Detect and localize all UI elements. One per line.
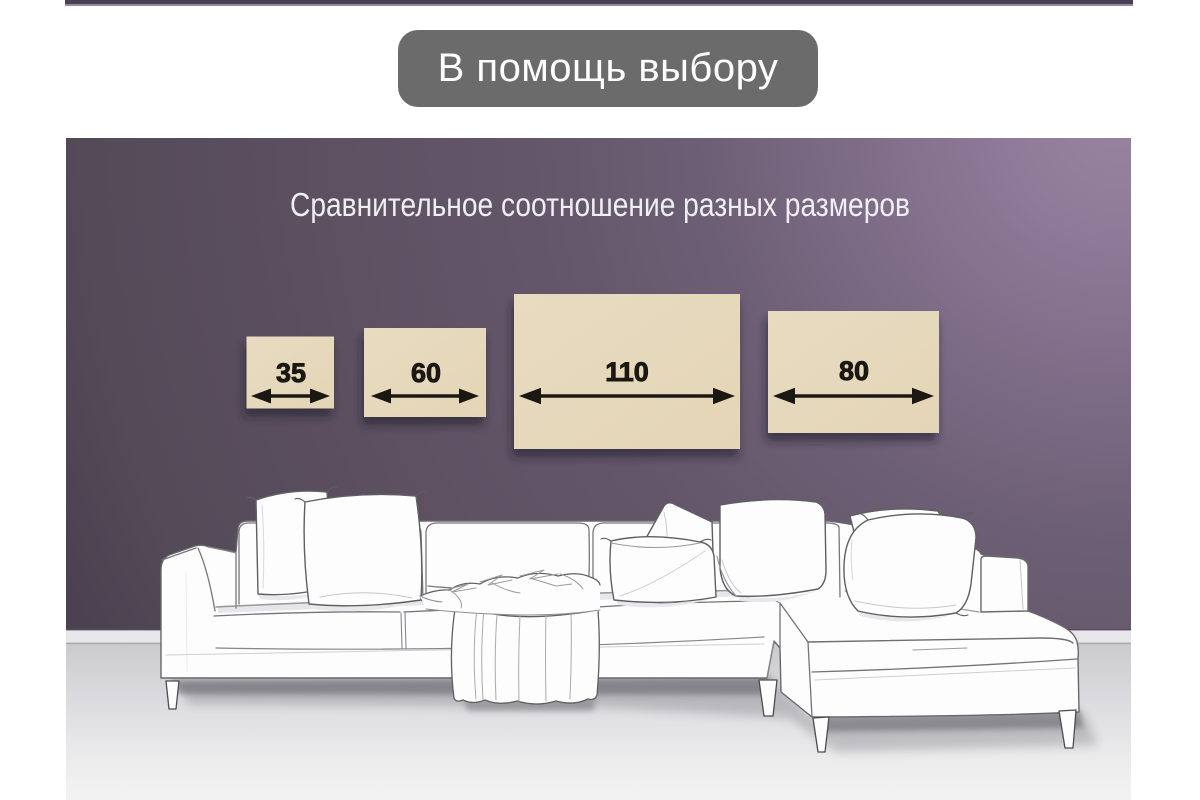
svg-text:110: 110 [605,357,649,387]
svg-text:35: 35 [276,358,306,388]
svg-text:Сравнительное соотношение разн: Сравнительное соотношение разных размеро… [290,186,910,223]
svg-text:60: 60 [411,358,441,388]
svg-text:80: 80 [839,356,869,386]
